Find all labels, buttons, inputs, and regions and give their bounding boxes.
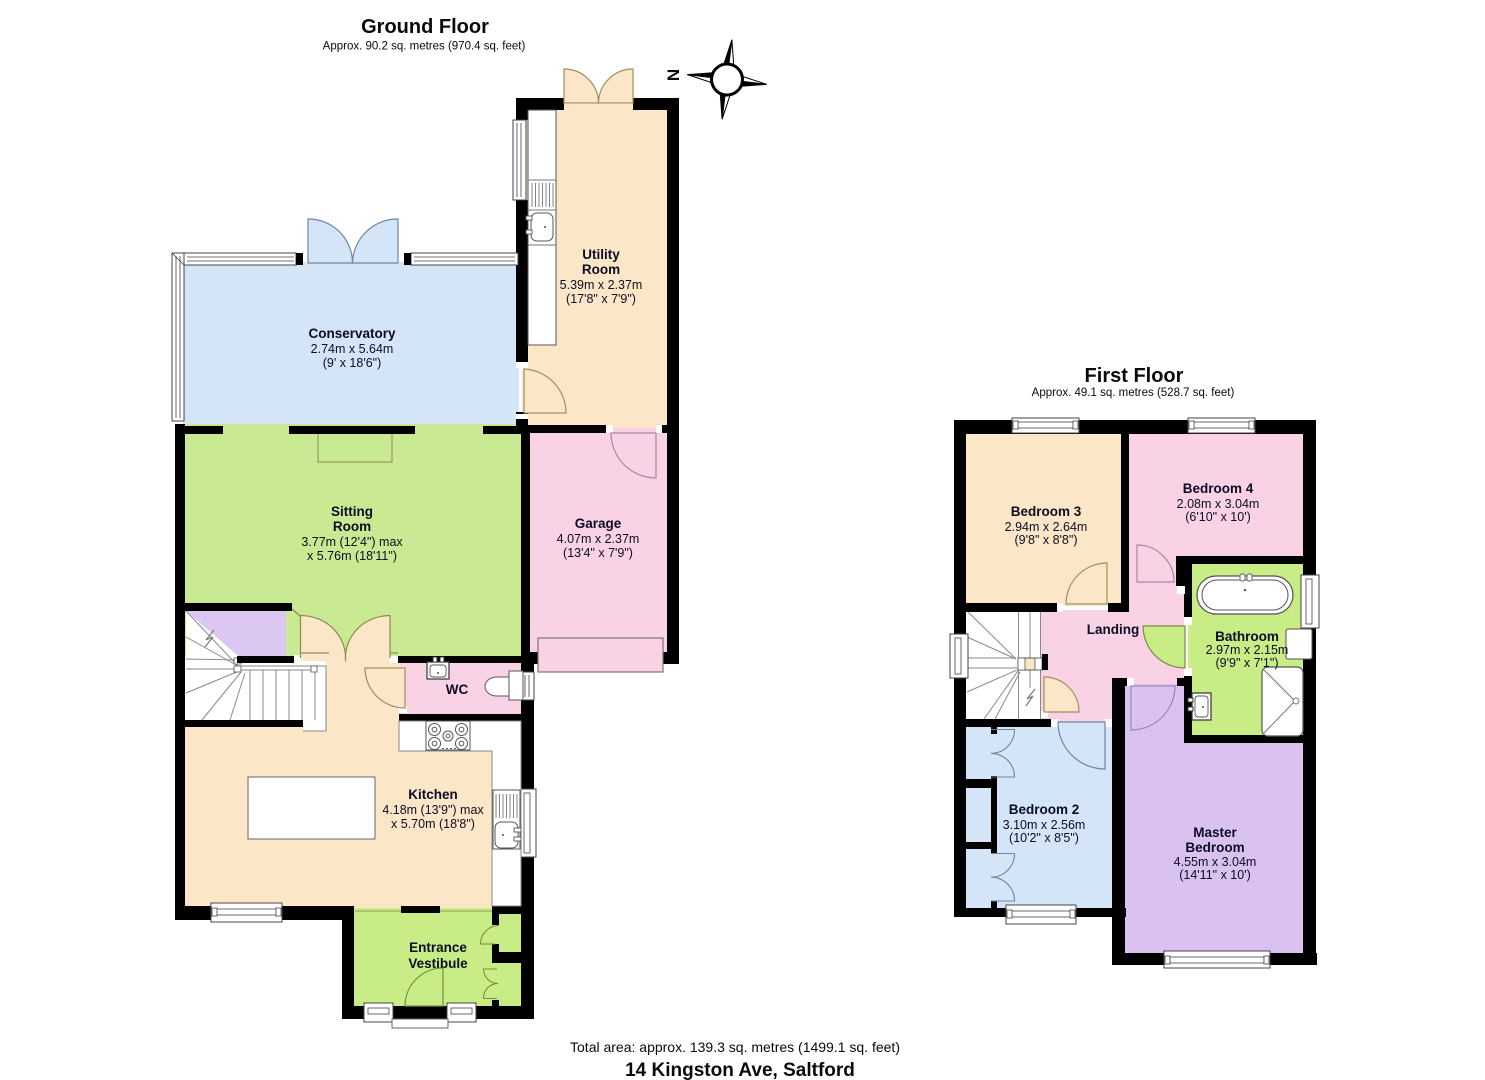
svg-text:2.97m x 2.15m: 2.97m x 2.15m [1206,643,1289,657]
svg-text:(17'8" x 7'9"): (17'8" x 7'9") [566,292,636,306]
svg-text:3.10m x 2.56m: 3.10m x 2.56m [1003,818,1086,832]
svg-text:(9' x 18'6"): (9' x 18'6") [323,356,382,370]
svg-text:Bedroom 3: Bedroom 3 [1011,504,1082,519]
svg-text:x 5.76m (18'11"): x 5.76m (18'11") [307,549,397,563]
svg-text:2.08m x 3.04m: 2.08m x 3.04m [1177,497,1260,511]
svg-text:Ground Floor: Ground Floor [361,16,489,38]
svg-text:(13'4" x 7'9"): (13'4" x 7'9") [563,546,633,560]
svg-text:Garage: Garage [575,516,622,531]
svg-text:Landing: Landing [1087,622,1140,637]
svg-text:x 5.70m (18'8"): x 5.70m (18'8") [391,817,475,831]
svg-text:Conservatory: Conservatory [308,326,396,341]
svg-text:Bathroom: Bathroom [1215,629,1279,644]
svg-text:Approx. 90.2 sq. metres (970.4: Approx. 90.2 sq. metres (970.4 sq. feet) [323,41,526,53]
svg-text:Entrance: Entrance [409,940,467,955]
svg-text:14 Kingston Ave, Saltford: 14 Kingston Ave, Saltford [625,1060,855,1080]
svg-text:(14'11" x 10'): (14'11" x 10') [1179,868,1251,882]
svg-text:4.55m x 3.04m: 4.55m x 3.04m [1174,855,1257,869]
svg-text:(9'8" x 8'8"): (9'8" x 8'8") [1015,533,1078,547]
svg-text:Approx. 49.1 sq. metres (528.7: Approx. 49.1 sq. metres (528.7 sq. feet) [1032,387,1235,399]
svg-text:Room: Room [582,262,620,277]
svg-text:(9'9" x 7'1"): (9'9" x 7'1") [1216,656,1279,670]
svg-text:5.39m x 2.37m: 5.39m x 2.37m [560,278,643,292]
svg-text:Master: Master [1193,825,1237,840]
svg-text:3.77m (12'4") max: 3.77m (12'4") max [301,535,403,549]
svg-text:(6'10" x 10'): (6'10" x 10') [1185,510,1251,524]
svg-text:First Floor: First Floor [1085,365,1184,387]
svg-text:Bedroom: Bedroom [1185,840,1244,855]
svg-text:2.74m x 5.64m: 2.74m x 5.64m [311,342,394,356]
svg-text:2.94m x 2.64m: 2.94m x 2.64m [1005,520,1088,534]
svg-text:Kitchen: Kitchen [408,787,458,802]
svg-text:(10'2" x 8'5"): (10'2" x 8'5") [1009,831,1079,845]
svg-text:Vestibule: Vestibule [408,956,468,971]
svg-text:Room: Room [333,519,371,534]
svg-text:WC: WC [446,682,469,697]
svg-text:Bedroom 4: Bedroom 4 [1183,481,1254,496]
svg-text:N: N [664,69,683,81]
svg-text:Sitting: Sitting [331,504,373,519]
svg-text:4.18m (13'9") max: 4.18m (13'9") max [382,803,484,817]
svg-text:Utility: Utility [582,247,620,262]
svg-text:Bedroom 2: Bedroom 2 [1009,802,1080,817]
svg-text:4.07m x 2.37m: 4.07m x 2.37m [557,532,640,546]
svg-text:Total area: approx. 139.3 sq.: Total area: approx. 139.3 sq. metres (14… [570,1039,900,1055]
